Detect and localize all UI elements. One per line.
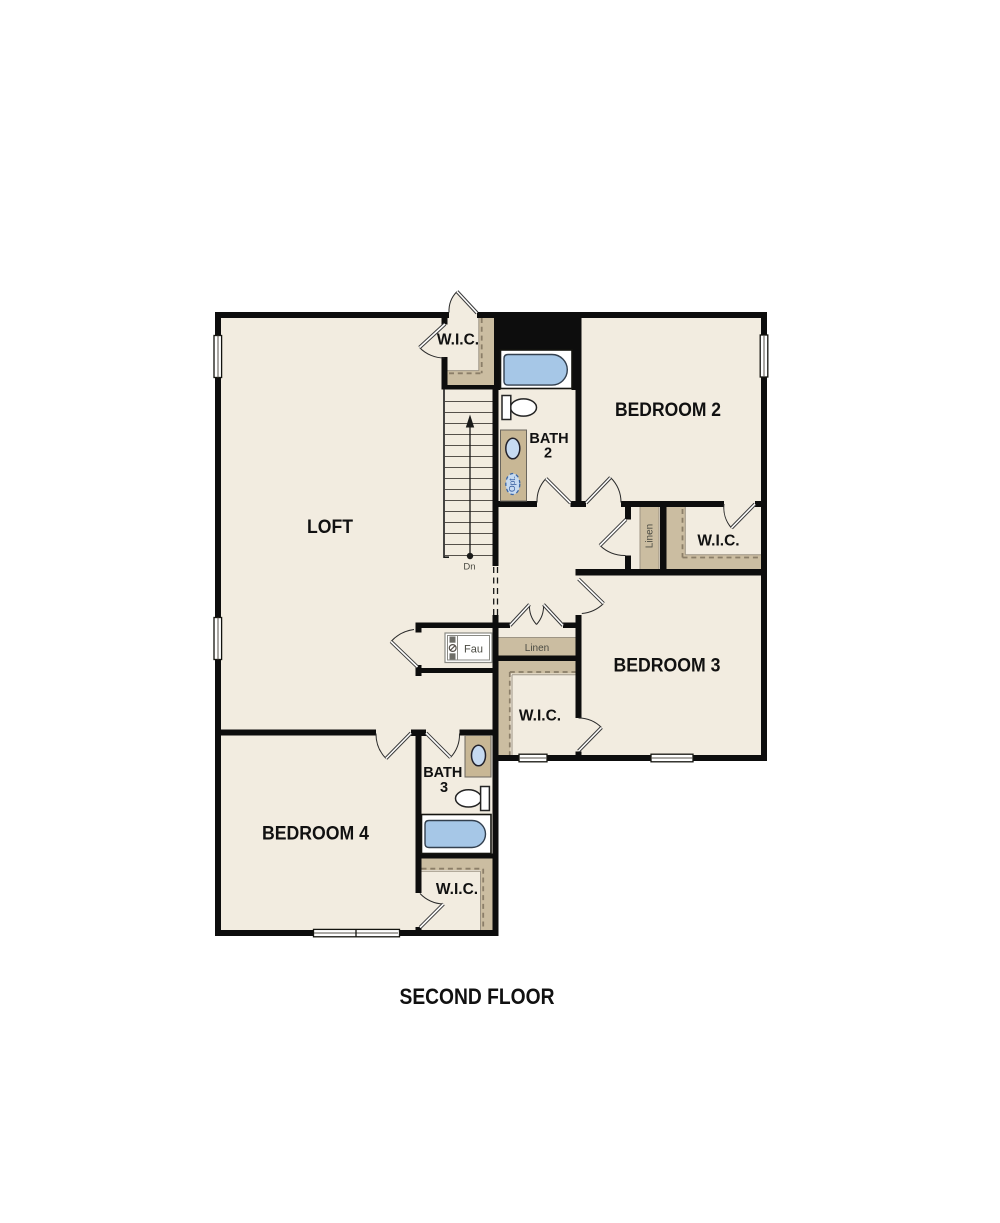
svg-text:Dn: Dn bbox=[463, 562, 475, 573]
svg-text:W.I.C.: W.I.C. bbox=[436, 881, 478, 898]
svg-text:SECOND FLOOR: SECOND FLOOR bbox=[400, 984, 555, 1009]
svg-text:W.I.C.: W.I.C. bbox=[437, 332, 479, 349]
svg-text:Fau: Fau bbox=[464, 644, 483, 656]
svg-text:3: 3 bbox=[440, 780, 448, 796]
svg-text:BATH: BATH bbox=[423, 765, 462, 781]
svg-text:BEDROOM 2: BEDROOM 2 bbox=[615, 400, 721, 421]
svg-text:BEDROOM 4: BEDROOM 4 bbox=[262, 824, 369, 845]
svg-text:Linen: Linen bbox=[645, 524, 656, 548]
svg-text:LOFT: LOFT bbox=[307, 517, 353, 538]
svg-text:Linen: Linen bbox=[525, 643, 549, 654]
svg-text:W.I.C.: W.I.C. bbox=[519, 708, 561, 725]
svg-text:Opt.: Opt. bbox=[507, 476, 517, 492]
svg-text:2: 2 bbox=[544, 446, 552, 462]
svg-text:W.I.C.: W.I.C. bbox=[697, 533, 739, 550]
svg-text:BEDROOM 3: BEDROOM 3 bbox=[614, 656, 721, 677]
